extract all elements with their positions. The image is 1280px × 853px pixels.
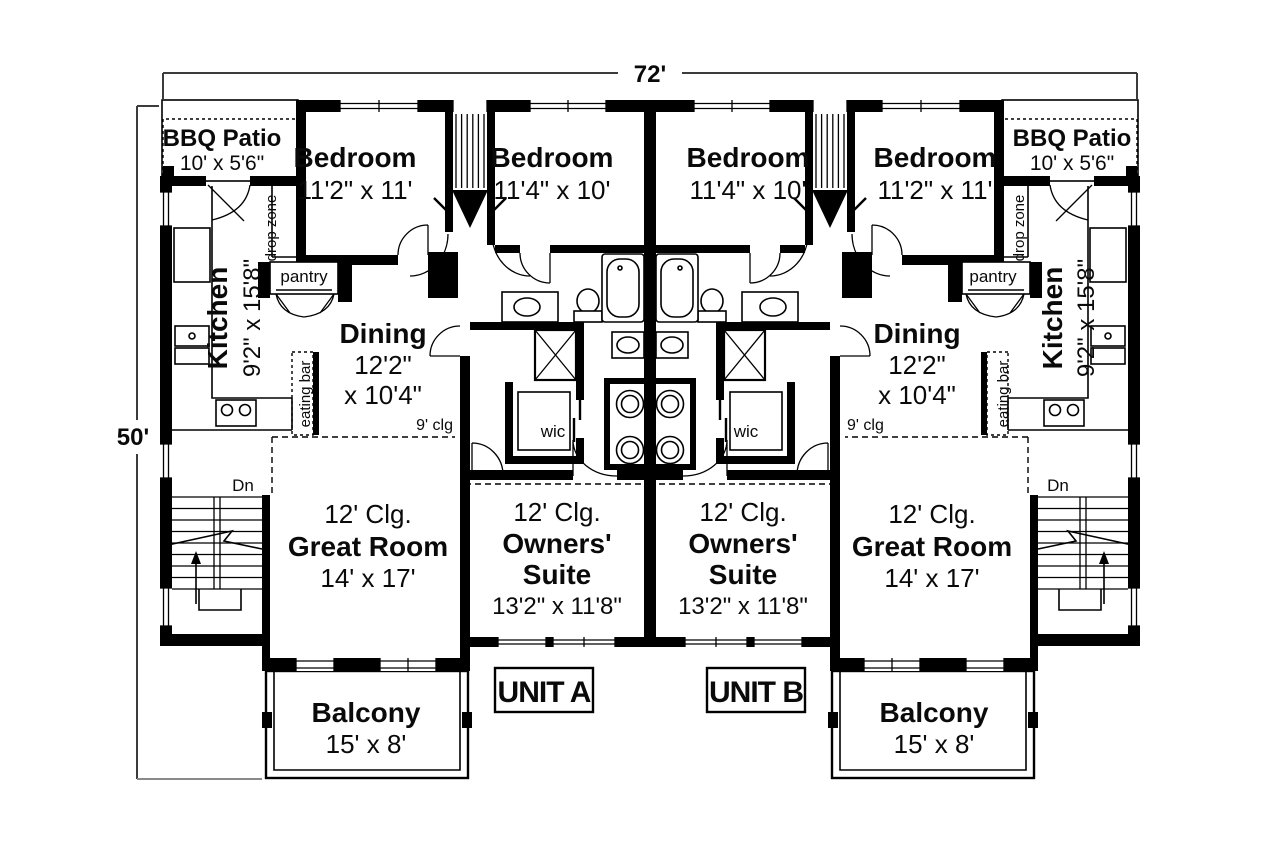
room-label-owners-suite-a1: Owners' (502, 528, 611, 559)
stairs-down-label-b: Dn (1047, 476, 1069, 495)
pantry-label-a: pantry (280, 267, 328, 286)
room-size1-dining-b: 12'2" (888, 350, 946, 380)
overall-depth-dim: 50' (117, 424, 149, 451)
room-size-bedroom-a2: 11'4" x 10' (494, 175, 611, 205)
drop-zone-label-a: drop zone (263, 195, 280, 262)
duplex-floor-plan: 72' 50' BBQ Patio 10' x 5'6" Bedroom 11'… (0, 0, 1280, 853)
room-size2-dining-b: x 10'4" (878, 380, 956, 410)
room-size-balcony-a: 15' x 8' (326, 729, 407, 759)
room-label-kitchen-a: Kitchen (202, 267, 233, 370)
room-size-bedroom-a1: 11'2" x 11' (297, 175, 412, 205)
room-size1-dining-a: 12'2" (354, 350, 412, 380)
floor-plan-page: 72' 50' BBQ Patio 10' x 5'6" Bedroom 11'… (0, 0, 1280, 853)
eating-bar-label-b: eating bar (995, 361, 1012, 428)
room-size2-dining-a: x 10'4" (344, 380, 422, 410)
room-label-bedroom-b2: Bedroom (874, 142, 997, 173)
room-size-kitchen-b: 9'2" x 15'8" (1073, 259, 1100, 377)
room-label-bedroom-b1: Bedroom (687, 142, 810, 173)
room-size-bedroom-b1: 11'4" x 10' (690, 175, 807, 205)
room-label-owners-suite-b2: Suite (709, 559, 777, 590)
party-wall (644, 100, 656, 647)
eating-bar-label-a: eating bar (297, 361, 314, 428)
room-size-kitchen-a: 9'2" x 15'8" (239, 259, 266, 377)
room-size-great-room-a: 14' x 17' (320, 563, 415, 593)
room-size-balcony-b: 15' x 8' (894, 729, 975, 759)
room-label-balcony-b: Balcony (880, 697, 989, 728)
wic-label-b: wic (733, 422, 759, 441)
room-label-bbq-patio-a: BBQ Patio (163, 125, 282, 152)
room-label-bedroom-a2: Bedroom (491, 142, 614, 173)
room-size-bedroom-b2: 11'2" x 11' (877, 175, 992, 205)
owners-suite-ceiling-b: 12' Clg. (699, 497, 786, 527)
ceiling-note-b: 9' clg (847, 417, 884, 434)
drop-zone-label-b: drop zone (1011, 195, 1028, 262)
room-size-bbq-patio-a: 10' x 5'6" (180, 152, 264, 175)
owners-suite-ceiling-a: 12' Clg. (513, 497, 600, 527)
overall-width-dim: 72' (634, 61, 666, 88)
room-label-dining-a: Dining (339, 318, 426, 349)
unit-b-label: UNIT B (709, 676, 803, 709)
room-label-balcony-a: Balcony (312, 697, 421, 728)
room-size-owners-suite-a: 13'2" x 11'8" (492, 593, 622, 620)
room-label-owners-suite-b1: Owners' (688, 528, 797, 559)
room-label-dining-b: Dining (873, 318, 960, 349)
wic-label-a: wic (540, 422, 566, 441)
unit-a-label: UNIT A (498, 676, 591, 709)
room-label-owners-suite-a2: Suite (523, 559, 591, 590)
room-label-great-room-b: Great Room (852, 531, 1012, 562)
room-size-owners-suite-b: 13'2" x 11'8" (678, 593, 808, 620)
room-label-kitchen-b: Kitchen (1037, 267, 1068, 370)
room-label-bbq-patio-b: BBQ Patio (1013, 125, 1132, 152)
room-size-great-room-b: 14' x 17' (884, 563, 979, 593)
room-label-great-room-a: Great Room (288, 531, 448, 562)
pantry-label-b: pantry (969, 267, 1017, 286)
ceiling-note-a: 9' clg (416, 417, 453, 434)
stairs-down-label-a: Dn (232, 476, 254, 495)
room-size-bbq-patio-b: 10' x 5'6" (1030, 152, 1114, 175)
room-label-bedroom-a1: Bedroom (294, 142, 417, 173)
great-room-ceiling-a: 12' Clg. (324, 499, 411, 529)
great-room-ceiling-b: 12' Clg. (888, 499, 975, 529)
